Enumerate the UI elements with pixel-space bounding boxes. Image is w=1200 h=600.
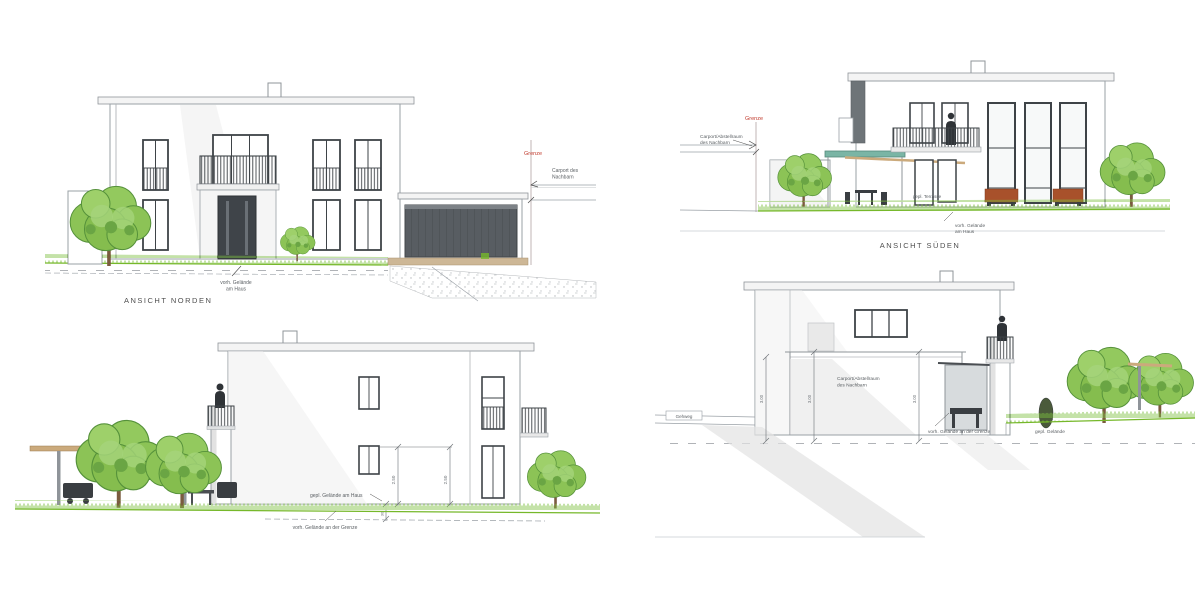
chimney — [268, 83, 281, 99]
svg-text:des Nachbarn: des Nachbarn — [700, 140, 730, 146]
side-right-house-drawing — [655, 271, 1195, 537]
tree — [1100, 143, 1165, 207]
walkway-label: Gehweg — [676, 414, 693, 419]
dim-label: 2.50 — [391, 475, 396, 484]
svg-text:am Haus: am Haus — [226, 287, 247, 293]
boundary-label: Grenze — [745, 116, 763, 122]
blueprint-canvas: Grenze Carport des Nachbarn vorh. Geländ… — [0, 0, 1200, 600]
side-left-house-drawing — [15, 331, 600, 522]
paving-slab — [388, 258, 528, 265]
elevation-south-view: Grenze Carport/Abstellraum des Nachbarn … — [665, 40, 1185, 255]
north-house-drawing — [45, 83, 596, 301]
dim-label: 30 — [380, 511, 385, 516]
south-house-drawing — [680, 61, 1170, 231]
person-figure — [948, 113, 954, 119]
boundary-line — [528, 140, 596, 265]
balcony-railing — [208, 406, 234, 427]
boundary-label: Grenze — [524, 151, 542, 157]
chimney — [971, 61, 985, 74]
gravel-section — [390, 266, 596, 298]
view-caption-south: ANSICHT SÜDEN — [880, 241, 961, 250]
planned-ground-note: gepl. Gelände — [1035, 429, 1065, 435]
tree — [527, 451, 585, 509]
planned-ground-note: gepl. Gelände am Haus — [310, 493, 363, 499]
ground-note: vorh. Gelände — [220, 280, 252, 286]
svg-text:des Nachbarn: des Nachbarn — [837, 383, 867, 389]
upper-window — [855, 310, 907, 337]
chimney — [283, 331, 297, 344]
garage — [398, 193, 528, 259]
side-balcony — [520, 408, 548, 437]
existing-ground-note: vorh. Gelände an der Grenze — [928, 429, 990, 435]
person-figure — [217, 384, 224, 391]
tall-windows — [988, 103, 1086, 203]
existing-ground-note: vorh. Gelände an der Grenze — [293, 525, 358, 531]
balcony-railing — [987, 337, 1013, 360]
roof-slab — [848, 73, 1114, 81]
dim-label: 3.00 — [912, 394, 917, 403]
elevation-north-view: Grenze Carport des Nachbarn vorh. Geländ… — [40, 15, 600, 305]
neighbor-carport-note: Carport des — [552, 168, 579, 174]
roof-slab — [744, 282, 1014, 290]
dim-label: 3.00 — [759, 394, 764, 403]
svg-text:Nachbarn: Nachbarn — [552, 175, 574, 181]
svg-text:am Haus: am Haus — [955, 229, 975, 235]
balcony-railing — [893, 128, 979, 148]
carport-label: Carport/Abstellraum — [837, 376, 880, 382]
entrance-door — [200, 190, 276, 259]
covered-terrace — [938, 363, 990, 430]
elevation-side-left-view: 2.50 2.50 30 gepl. Gelände am Haus vorh.… — [15, 330, 605, 595]
ground-note: vorh. Gelände — [955, 223, 985, 229]
chimney — [940, 271, 953, 283]
ground — [45, 253, 596, 301]
elevation-side-right-view: Carport/Abstellraum des Nachbarn Gehweg … — [650, 265, 1200, 555]
dim-label: 2.50 — [443, 475, 448, 484]
terrace-note: gepl. Terrasse — [913, 194, 942, 199]
roof-slab — [98, 97, 414, 104]
view-caption-north: ANSICHT NORDEN — [124, 296, 212, 305]
person-figure — [999, 316, 1005, 322]
neighbor-carport-note: Carport/Abstellraum — [700, 134, 743, 140]
roof-slab — [218, 343, 534, 351]
dim-label: 3.00 — [807, 394, 812, 403]
ground — [680, 199, 1170, 231]
